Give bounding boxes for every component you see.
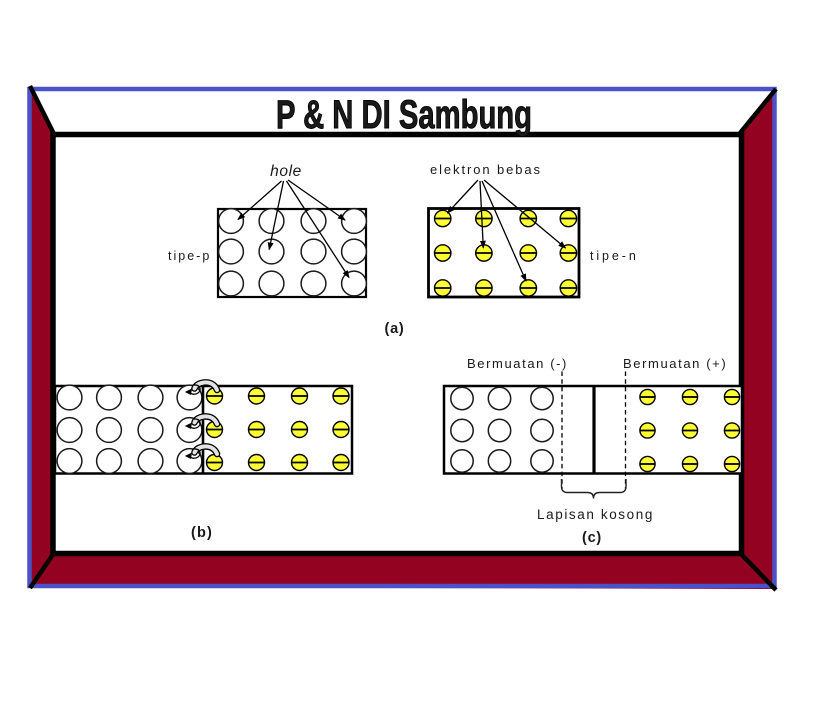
svg-text:tipe-n: tipe-n — [590, 249, 639, 263]
svg-text:P & N DI Sambung: P & N DI Sambung — [276, 93, 532, 137]
svg-text:(c): (c) — [582, 530, 602, 546]
svg-text:Bermuatan (+): Bermuatan (+) — [623, 356, 727, 371]
svg-text:tipe-p: tipe-p — [168, 249, 211, 263]
svg-text:Bermuatan (-): Bermuatan (-) — [467, 356, 568, 371]
svg-text:Lapisan kosong: Lapisan kosong — [537, 507, 654, 522]
svg-text:(b): (b) — [191, 525, 213, 541]
svg-text:elektron bebas: elektron bebas — [430, 162, 542, 177]
svg-text:hole: hole — [270, 163, 302, 180]
svg-text:(a): (a) — [384, 321, 404, 337]
